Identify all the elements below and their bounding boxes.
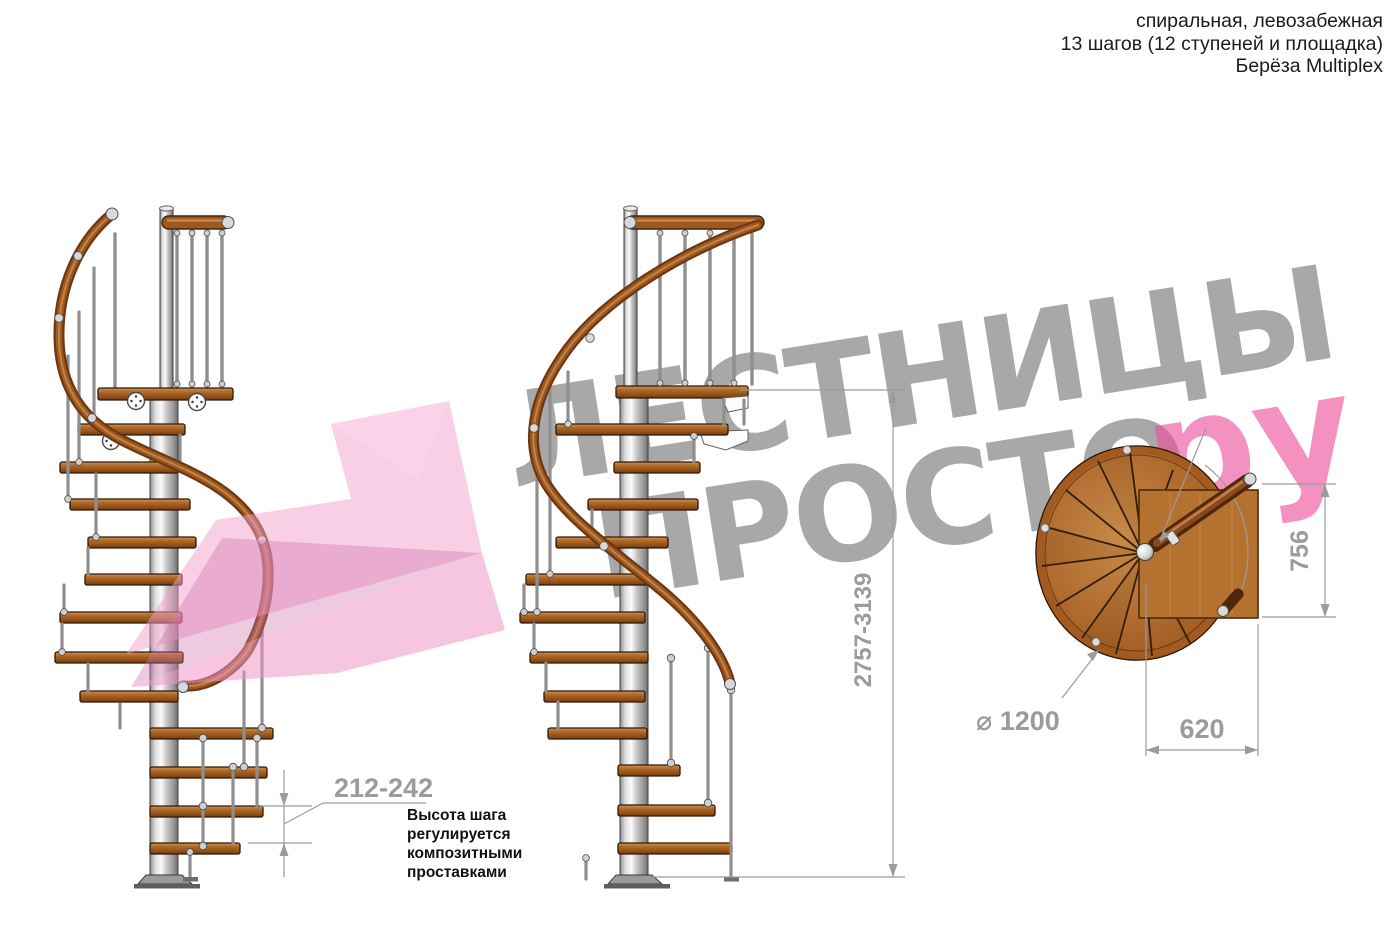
rod-foot — [724, 877, 739, 882]
dim-landing-width: 620 — [1179, 714, 1224, 744]
staircase-drawing: 212-242 2757-3139 756 620 ⌀ 1200 — [0, 0, 1400, 938]
note-line: Высота шага — [407, 806, 522, 825]
drawing-canvas: ЛЕСТНИЦЫ ПРОСТО .ру — [0, 0, 1400, 938]
note-line: проставками — [407, 863, 522, 882]
dim-diameter: ⌀ 1200 — [976, 706, 1060, 736]
base-plate — [134, 884, 200, 889]
pole-plan — [1137, 544, 1154, 561]
handrail-lower-cap — [725, 679, 736, 690]
post-cap — [160, 206, 174, 211]
top-handrail — [162, 216, 230, 229]
dim-step-height: 212-242 — [334, 773, 433, 803]
title-block: спиральная, левозабежная 13 шагов (12 ст… — [1061, 10, 1383, 78]
step-height-note: Высота шага регулируется композитными пр… — [407, 806, 522, 882]
side-view-center — [520, 206, 764, 889]
upper-post — [160, 208, 173, 392]
handrail-start-cap — [106, 208, 118, 220]
note-line: регулируется — [407, 825, 522, 844]
landing-platform — [616, 386, 748, 398]
base-plate — [604, 884, 670, 889]
rail-stub-cap — [1218, 606, 1229, 617]
landing-platform — [98, 388, 233, 400]
handrail-end-cap — [222, 217, 234, 229]
title-type: спиральная, левозабежная — [1061, 10, 1383, 33]
handrail-tip-cap — [1244, 473, 1256, 485]
rod-foot — [183, 877, 198, 882]
handrail-end-cap — [624, 217, 636, 229]
top-view — [1036, 446, 1258, 660]
note-line: композитными — [407, 844, 522, 863]
post-cap — [624, 206, 638, 211]
center-pole — [620, 386, 648, 877]
platform-balusters — [660, 231, 752, 384]
title-material: Берёза Multiplex — [1061, 55, 1383, 78]
dim-landing-depth: 756 — [1286, 530, 1314, 572]
dim-total-height: 2757-3139 — [850, 573, 877, 688]
title-steps: 13 шагов (12 ступеней и площадка) — [1061, 33, 1383, 56]
pole-base — [608, 875, 662, 884]
